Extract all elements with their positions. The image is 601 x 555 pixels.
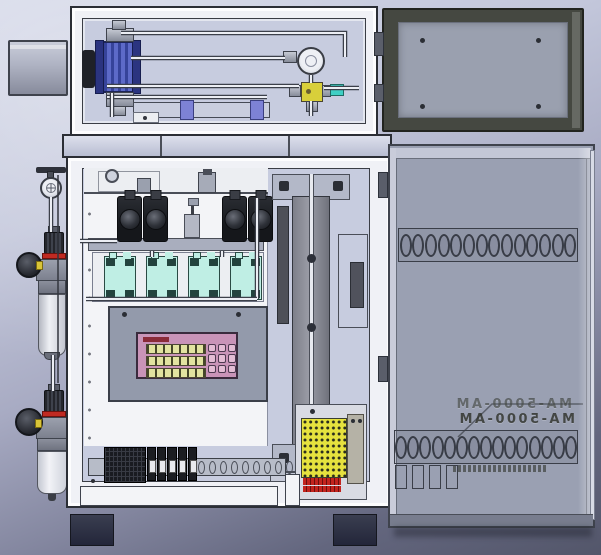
slide-block (180, 100, 194, 120)
controller-keypad (208, 344, 236, 373)
hole (425, 234, 437, 257)
needle-valve (184, 214, 200, 238)
hole (514, 234, 526, 257)
rail-fitting-bracket (98, 171, 160, 192)
compartment-base-strip (80, 486, 278, 506)
plate-screw (122, 312, 127, 317)
yellow-terminal-board (301, 418, 347, 478)
rail-slot (286, 461, 293, 474)
sensor (230, 256, 262, 300)
frl2-drain-nub (48, 494, 56, 501)
digital-display-stack (146, 344, 204, 374)
rail-slot (220, 461, 227, 474)
hole (407, 436, 419, 459)
door-hinge (378, 172, 388, 198)
pump-bottom-fitting (106, 92, 134, 107)
regulator (117, 196, 142, 242)
hole (463, 234, 475, 257)
door-hinge (374, 32, 384, 56)
hole (400, 234, 412, 257)
frl1-marker (36, 261, 43, 270)
frl2-adjust-cap (44, 390, 64, 412)
door-sub-label-blur (453, 465, 547, 472)
hole (564, 234, 576, 257)
lower-door-outer-edge (590, 150, 595, 520)
door-hinge (378, 356, 388, 382)
key (228, 354, 236, 362)
frl1-filter-bowl (38, 294, 66, 356)
key (228, 344, 236, 352)
hole (565, 436, 577, 459)
door-slot (446, 465, 458, 489)
pump-mount-flange (82, 50, 95, 88)
regulator (143, 196, 168, 242)
hole (419, 436, 431, 459)
sensor (188, 256, 220, 300)
hole (541, 436, 553, 459)
door-slot (429, 465, 441, 489)
rod-clevis-pin (307, 254, 316, 263)
slide-block (250, 100, 264, 120)
display-row (146, 344, 206, 354)
external-motor-box (8, 40, 68, 96)
gauge-fitting-nut (283, 51, 297, 63)
base-spacer-block (285, 474, 300, 506)
key (228, 365, 236, 373)
regulator (222, 196, 247, 242)
teal-quick-fitting (330, 84, 344, 96)
hole (450, 234, 462, 257)
key (218, 354, 226, 362)
cross-valve-bottom-nut (306, 101, 318, 112)
din-rail-slots (198, 461, 284, 473)
pressure-gauge (297, 47, 325, 75)
hole (412, 234, 424, 257)
key (218, 344, 226, 352)
hole (539, 234, 551, 257)
rail-slot (275, 461, 282, 474)
relay-module-row (147, 447, 197, 481)
relay (178, 447, 187, 481)
red-connector-row (303, 478, 341, 485)
hole (468, 436, 480, 459)
board-screw (310, 409, 315, 414)
rail-slot (264, 461, 271, 474)
key (218, 365, 226, 373)
compartment-divider-band (62, 134, 392, 158)
cad-machine-render: MA-5000-AM MA-5000-AM (0, 0, 601, 555)
door-screw (536, 104, 541, 109)
relay (147, 447, 156, 481)
door-screw (420, 104, 425, 109)
hole (476, 234, 488, 257)
frl2-marker (35, 419, 42, 428)
door-model-label: MA-5000-AM (441, 412, 591, 428)
hole (456, 436, 468, 459)
lower-door-top-band (392, 148, 591, 159)
lower-door-right-highlight (578, 148, 590, 520)
relay (157, 447, 166, 481)
key (208, 365, 216, 373)
hole (432, 436, 444, 459)
hole (516, 436, 528, 459)
louver-strip-lower (394, 430, 578, 464)
hole (501, 234, 513, 257)
door-model-label-ghost: MA-5000-AM (438, 397, 588, 413)
actuator-sensor-rail (277, 206, 289, 324)
hole (553, 436, 565, 459)
rail-fitting-block (198, 172, 216, 193)
hole (444, 436, 456, 459)
display-row (146, 356, 206, 366)
hole (492, 436, 504, 459)
rod-clevis-pin (307, 323, 316, 332)
hole (488, 234, 500, 257)
door-slot (395, 465, 407, 489)
sensor (104, 256, 136, 300)
blue-booster-pump (95, 41, 141, 93)
louver-strip-upper (398, 228, 578, 262)
display-row (146, 368, 206, 378)
hole (480, 436, 492, 459)
panel-screw (91, 479, 95, 483)
pump-top-fitting (106, 28, 134, 42)
frl1-adjust-cap (44, 232, 64, 254)
rail-slot (253, 461, 260, 474)
plate-screw (236, 312, 241, 317)
cross-valve-left-nut (289, 85, 301, 97)
slide-bar-bracket (133, 112, 159, 123)
door-screw (536, 38, 541, 43)
hole (552, 234, 564, 257)
key (208, 344, 216, 352)
regulator (248, 196, 273, 242)
frl2-bowl-collar (37, 438, 67, 451)
side-latch-block (350, 262, 364, 308)
cabinet-foot (70, 514, 114, 546)
door-screw (420, 38, 425, 43)
hole (526, 234, 538, 257)
terminal-block-array (104, 447, 146, 483)
board-side-bracket (347, 414, 364, 484)
door-hinge (374, 84, 384, 102)
shutoff-valve-body (40, 177, 62, 199)
frl1-bowl-ring (44, 352, 60, 360)
red-connector-row (303, 486, 341, 492)
door-slot-row (395, 465, 457, 489)
teal-sensor-row (104, 256, 256, 298)
hole (438, 234, 450, 257)
brass-cross-valve (301, 82, 323, 102)
sensor (146, 256, 178, 300)
rail-slot (198, 461, 205, 474)
rail-slot (231, 461, 238, 474)
cabinet-foot (333, 514, 377, 546)
frl1-bowl-collar (38, 280, 66, 294)
door-slot (412, 465, 424, 489)
controller-title-mark (143, 337, 169, 342)
pump-bottom-fitting-nut (112, 106, 126, 116)
relay (188, 447, 197, 481)
rail-slot (209, 461, 216, 474)
hole (504, 436, 516, 459)
hole (529, 436, 541, 459)
lower-door-bottom-edge (390, 514, 593, 526)
door-drop-shadow (394, 527, 592, 537)
rail-slot (242, 461, 249, 474)
frl2-filter-bowl (37, 451, 67, 494)
upper-door-edge-highlight (572, 12, 580, 128)
pump-top-fitting-nut (112, 20, 126, 30)
relay (167, 447, 176, 481)
hole (395, 436, 407, 459)
key (208, 354, 216, 362)
